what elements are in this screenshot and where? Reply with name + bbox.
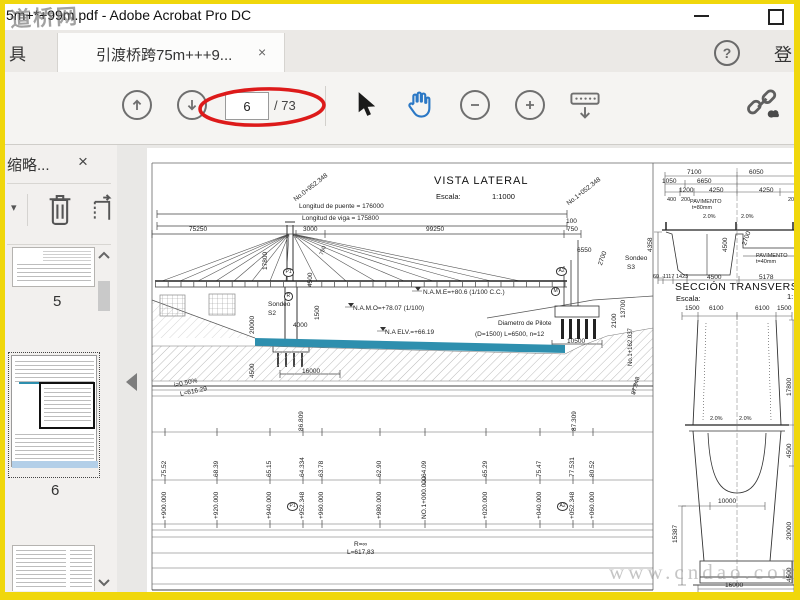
watermark-top-left: 道桥网 <box>9 0 79 34</box>
pier-label: P1 <box>287 502 298 511</box>
elevation-value: 63.78 <box>318 461 325 477</box>
divider <box>27 194 28 226</box>
cursor-icon <box>355 90 377 118</box>
sign-in-button[interactable]: 登 <box>774 41 792 67</box>
thumbnail-page-5[interactable] <box>12 247 95 287</box>
dim-label: 7100 <box>687 169 701 176</box>
dim-label: 4250 <box>709 187 723 194</box>
dim-label: 2100 <box>611 314 618 328</box>
dim-label: 4000 <box>293 322 307 329</box>
dim-label: 1500 <box>314 306 321 320</box>
station-value: +960.000 <box>318 492 325 519</box>
slope-label: 2.0% <box>739 416 752 422</box>
ref-label: R <box>284 292 293 301</box>
thumbnail-content <box>16 550 66 588</box>
previous-page-button[interactable] <box>122 90 152 120</box>
scale-value: 1:1000 <box>492 192 515 201</box>
slope-label: 2.0% <box>703 214 716 220</box>
elevation-value: 68.39 <box>213 461 220 477</box>
water-level-label: N.A.M.E=+80.6 (1/100 C.C.) <box>423 289 505 296</box>
curve-label: R=∞ <box>354 541 367 548</box>
page-view-indicator[interactable] <box>39 382 95 429</box>
borehole-label: Sondeo <box>625 255 647 262</box>
dim-label: 1200 <box>679 187 693 194</box>
elevation-value: 62.90 <box>376 461 383 477</box>
dim-label: 1050 <box>662 178 676 185</box>
dim-label: 10500 <box>567 338 585 345</box>
elevation-label: 86.809 <box>298 411 305 431</box>
pier-label: P1 <box>283 268 294 277</box>
dim-label: 3000 <box>303 226 317 233</box>
elevation-value: 65.29 <box>482 461 489 477</box>
pile-note: Diametro de Pilote <box>498 320 551 327</box>
scroll-down-icon[interactable] <box>97 578 111 588</box>
thumbnails-panel: 缩略... × ▾ 5 <box>5 145 118 592</box>
water-level-label: N.A.M.O=+78.07 (1/100) <box>353 305 424 312</box>
thumbnail-content <box>44 388 91 424</box>
station-value: NO.1+000.000 <box>421 477 428 519</box>
trash-icon <box>47 191 73 227</box>
dim-label: 4500 <box>722 238 729 252</box>
dim-label: 4500 <box>786 444 793 458</box>
dim-label: 17800 <box>786 378 793 396</box>
minus-icon <box>468 98 482 112</box>
dim-label: 200 <box>681 197 690 203</box>
thumbnail-label-5[interactable]: 5 <box>53 293 61 310</box>
options-caret-icon[interactable]: ▾ <box>11 201 17 214</box>
delete-pages-button[interactable] <box>47 191 73 232</box>
scroll-up-icon[interactable] <box>97 250 111 260</box>
slope-label: 2.0% <box>710 416 723 422</box>
rotate-page-icon <box>90 193 114 225</box>
dim-label: Longitud de puente = 176000 <box>299 203 384 210</box>
elevation-value: 65.15 <box>266 461 273 477</box>
station-value: +020.000 <box>482 492 489 519</box>
thumbnail-content <box>43 251 91 261</box>
pile-note: (D=1500) L=6500, n=12 <box>475 331 544 338</box>
dim-label: 1117 <box>663 274 674 280</box>
thumbnail-content <box>15 434 94 460</box>
document-canvas: VISTA LATERAL Escala: 1:1000 No.0+952.34… <box>117 145 794 592</box>
divider <box>7 244 111 245</box>
thumbnail-content <box>17 264 91 284</box>
pdf-page[interactable]: VISTA LATERAL Escala: 1:1000 No.0+952.34… <box>147 148 794 592</box>
dim-label: 1423 <box>676 274 688 280</box>
title-bar: 5m+*+99m.pdf - Adobe Acrobat Pro DC <box>0 0 800 30</box>
pavement-note: t=80mm <box>692 205 712 211</box>
scrollbar-thumb[interactable] <box>98 281 110 311</box>
dim-label: 750 <box>567 226 578 233</box>
scale-label: Escala: <box>676 294 701 303</box>
thumbnails-panel-title: 缩略... <box>7 154 50 175</box>
thumbnails-close-icon[interactable]: × <box>78 152 88 172</box>
dim-label: 6550 <box>577 247 591 254</box>
help-glyph: ? <box>723 45 732 61</box>
document-tab-label: 引渡桥跨75m+++9... <box>96 44 232 65</box>
thumbnail-page-7[interactable] <box>12 545 95 591</box>
dim-label: 400 <box>667 197 676 203</box>
elevation-value: 75.47 <box>536 461 543 477</box>
thumbnail-content <box>70 550 92 588</box>
red-circle-annotation <box>196 84 330 130</box>
divider <box>7 183 111 184</box>
dim-label: 6650 <box>697 178 711 185</box>
document-tab[interactable]: 引渡桥跨75m+++9... × <box>57 33 285 72</box>
thumbnail-content <box>15 361 94 383</box>
dim-label: 6050 <box>749 169 763 176</box>
dim-label: 13700 <box>620 300 627 318</box>
scale-value: 1: <box>787 292 793 301</box>
tab-bar: 具 引渡桥跨75m+++9... × ? 登 <box>0 30 800 72</box>
dim-label: 16000 <box>302 368 320 375</box>
tab-close-icon[interactable]: × <box>258 44 266 60</box>
dim-label: 17800 <box>262 252 269 270</box>
borehole-label: S2 <box>268 310 276 317</box>
elevation-value: 75.52 <box>161 461 168 477</box>
help-icon[interactable]: ? <box>714 40 740 66</box>
dim-label: 4500 <box>707 274 721 281</box>
elevation-value: 64.09 <box>421 461 428 477</box>
dim-label: 20000 <box>249 316 256 334</box>
dim-label: 4500 <box>249 364 256 378</box>
station-value: +900.000 <box>161 492 168 519</box>
dim-label: 100 <box>566 218 577 225</box>
ref-label: M <box>551 287 560 296</box>
tools-panel-label[interactable]: 具 <box>9 40 26 65</box>
thumbnail-label-6[interactable]: 6 <box>51 482 59 499</box>
dim-label: 1500 <box>685 305 699 312</box>
thumbnail-page-6-selected[interactable] <box>8 352 100 478</box>
abutment-label: A2 <box>556 267 567 276</box>
station-value: +920.000 <box>213 492 220 519</box>
dim-label: 99250 <box>426 226 444 233</box>
station-value: +052.348 <box>569 492 576 519</box>
elevation-value: 64.334 <box>299 457 306 477</box>
thumbnail-content <box>11 355 97 467</box>
zoom-in-button[interactable] <box>515 90 545 120</box>
drawing-linework <box>147 148 794 592</box>
maximize-button[interactable] <box>768 9 784 25</box>
rotate-pages-button[interactable] <box>90 193 114 230</box>
plus-icon <box>523 98 537 112</box>
dim-label: 60 <box>653 274 659 280</box>
dim-label: 6100 <box>709 305 723 312</box>
dim-label: 10000 <box>718 498 736 505</box>
borehole-label: S3 <box>627 264 635 271</box>
station-value: +040.000 <box>536 492 543 519</box>
section-title: SECCIÓN TRANSVERS <box>675 281 794 293</box>
watermark-bottom-right: www.cndao.com <box>609 560 794 585</box>
minimize-button[interactable] <box>694 15 709 17</box>
pavement-note: t=40mm <box>756 259 776 265</box>
dim-label: 1500 <box>777 305 791 312</box>
frame-border <box>0 592 800 600</box>
curve-label: L=617,83 <box>347 549 374 556</box>
dim-label: 5178 <box>759 274 773 281</box>
station-value: +060.000 <box>589 492 596 519</box>
hand-tool-button[interactable] <box>404 88 434 125</box>
station-value: +952.348 <box>299 492 306 519</box>
elevation-value: 77.531 <box>569 457 576 477</box>
zoom-out-button[interactable] <box>460 90 490 120</box>
arrow-up-icon <box>130 98 144 112</box>
link-cloud-icon <box>745 88 781 122</box>
frame-border <box>0 0 800 4</box>
dim-label: 75250 <box>189 226 207 233</box>
elevation-value: 80.52 <box>589 461 596 477</box>
select-tool-button[interactable] <box>355 90 377 123</box>
frame-border <box>0 0 5 600</box>
slope-label: 2.0% <box>741 214 754 220</box>
water-level-label: N.A ELV.=+66.19 <box>385 329 434 336</box>
scale-label: Escala: <box>436 192 461 201</box>
main-toolbar: 6 / 73 <box>0 72 800 145</box>
toolbar-dots-icon <box>568 89 602 123</box>
selection-highlight <box>12 461 98 468</box>
borehole-label: Sondeo <box>268 301 290 308</box>
dim-label: Longitud de viga = 175800 <box>302 215 379 222</box>
dim-label: 4250 <box>759 187 773 194</box>
station-label: No.1+162.037 <box>628 328 635 366</box>
elevation-label: 87.309 <box>571 411 578 431</box>
station-value: +980.000 <box>376 492 383 519</box>
drawing-title: VISTA LATERAL <box>434 175 529 187</box>
abutment-label: A2 <box>557 502 568 511</box>
dim-label: 20000 <box>786 522 793 540</box>
frame-border <box>794 0 800 600</box>
page-display-button[interactable] <box>568 89 602 128</box>
station-value: +940.000 <box>266 492 273 519</box>
collapse-panel-icon[interactable] <box>126 373 137 391</box>
dim-label: 15387 <box>672 525 679 543</box>
dim-label: 4500 <box>307 273 314 287</box>
dim-label: 6100 <box>755 305 769 312</box>
hand-icon <box>404 88 434 120</box>
dim-label: 4358 <box>647 238 654 252</box>
share-link-button[interactable] <box>745 88 781 127</box>
